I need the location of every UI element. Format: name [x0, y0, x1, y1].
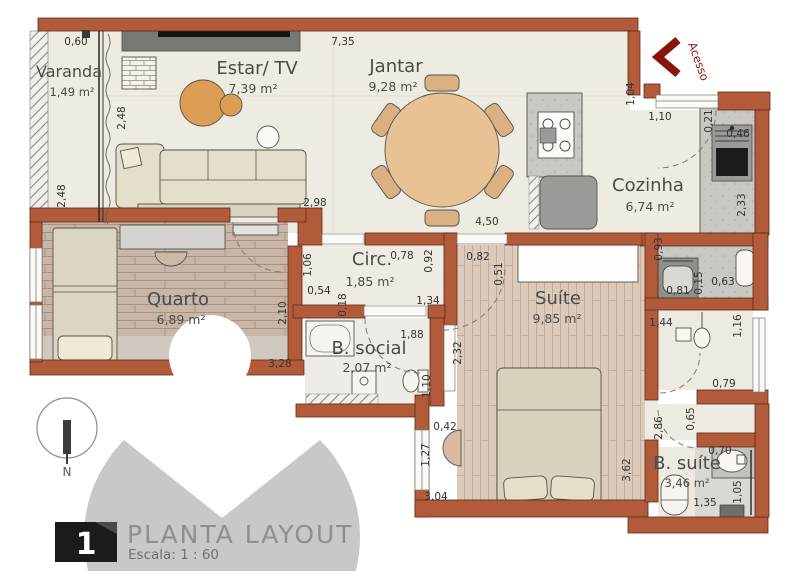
- floor-drain: [676, 328, 691, 341]
- dimension-label: 1,34: [416, 295, 440, 307]
- dimension-label: 1,16: [732, 314, 744, 338]
- dimension-label: 0,60: [64, 36, 87, 48]
- dimension-label: 0,21: [703, 109, 715, 132]
- dimension-label: 0,54: [307, 285, 331, 297]
- plant-icon: [220, 94, 242, 116]
- plant-icon: [180, 80, 226, 126]
- side-table: [257, 126, 279, 148]
- room-area-estar: 7,39 m²: [229, 81, 278, 96]
- dimension-label: 2,33: [736, 193, 748, 216]
- varanda-open-hatch: [30, 31, 48, 222]
- pillow: [58, 336, 112, 360]
- dimension-label: 1,10: [421, 374, 433, 397]
- sheet-number: 1: [76, 527, 97, 562]
- room-label-varanda: Varanda: [36, 62, 102, 81]
- armchair: [443, 430, 461, 466]
- dimension-label: 0,65: [685, 407, 697, 430]
- wc-toilet: [694, 328, 710, 348]
- room-label-jantar: Jantar: [368, 56, 423, 77]
- dimension-label: 3,28: [268, 358, 291, 370]
- dimension-label: 1,05: [732, 480, 744, 503]
- water-heater: [736, 250, 754, 286]
- room-area-suite: 9,85 m²: [533, 311, 582, 326]
- window: [30, 248, 42, 302]
- room-area-jantar: 9,28 m²: [369, 79, 418, 94]
- room-label-estar: Estar/ TV: [216, 58, 298, 79]
- dimension-label: 2,10: [277, 301, 289, 324]
- pillow: [550, 476, 594, 502]
- dimension-label: 1,35: [693, 497, 716, 509]
- floor-plan-page: Varanda 1,49 m² Estar/ TV 7,39 m² Jantar…: [0, 0, 808, 571]
- access-arrow-icon: [658, 40, 678, 74]
- dimension-label: 0,46: [726, 128, 750, 140]
- room-area-quarto: 6,89 m²: [157, 312, 206, 327]
- room-area-bsuite: 3,46 m²: [664, 476, 709, 490]
- window: [753, 318, 765, 392]
- dimension-label: 0,15: [693, 271, 705, 294]
- north-compass: N: [37, 398, 97, 479]
- dimension-label: 0,82: [466, 251, 489, 263]
- dimension-label: 4,50: [475, 216, 498, 228]
- dimension-label: 0,51: [493, 262, 505, 285]
- dimension-label: 1,06: [302, 253, 314, 277]
- dimension-label: 2,98: [303, 197, 326, 209]
- dimension-label: 2,48: [116, 106, 128, 129]
- sofa: [160, 150, 306, 204]
- room-label-circ: Circ.: [352, 249, 392, 270]
- room-area-circ: 1,85 m²: [346, 274, 395, 289]
- desk: [120, 225, 225, 249]
- dimension-label: 0,81: [666, 285, 689, 297]
- floor-plan-canvas: Varanda 1,49 m² Estar/ TV 7,39 m² Jantar…: [0, 0, 808, 571]
- dimension-label: 1,44: [649, 317, 673, 329]
- shower-bench: [720, 505, 744, 517]
- north-needle-icon: [63, 420, 71, 454]
- sofa-pillow: [120, 147, 141, 168]
- dimension-label: 0,79: [712, 378, 735, 390]
- shelf: [233, 225, 278, 235]
- dimension-label: 0,42: [433, 421, 456, 433]
- access-label: Acesso: [685, 40, 712, 82]
- room-label-quarto: Quarto: [147, 289, 209, 310]
- wardrobe: [518, 245, 638, 282]
- room-label-cozinha: Cozinha: [612, 175, 684, 196]
- room-area-cozinha: 6,74 m²: [626, 199, 675, 214]
- dimension-label: 1,04: [625, 82, 637, 106]
- dimension-label: 0,70: [708, 445, 731, 457]
- page-title: PLANTA LAYOUT: [127, 520, 354, 549]
- dimension-label: 2,86: [653, 416, 665, 440]
- north-label: N: [63, 465, 72, 479]
- dimension-label: 2,48: [56, 184, 68, 207]
- pillow: [503, 475, 547, 501]
- pan: [540, 128, 556, 143]
- scale-label: Escala: 1 : 60: [128, 547, 219, 563]
- rug: [122, 57, 156, 89]
- tv-icon: [158, 31, 290, 37]
- dimension-label: 3,62: [621, 458, 633, 481]
- dimension-label: 2,32: [452, 341, 464, 364]
- bsocial-door-leaf: [364, 306, 426, 316]
- dimension-label: 1,88: [400, 329, 423, 341]
- dimension-label: 1,27: [420, 443, 432, 466]
- room-label-bsocial: B. social: [331, 338, 406, 359]
- dimension-label: 0,78: [390, 250, 413, 262]
- dimension-label: 0,63: [711, 276, 734, 288]
- dimension-label: 0,92: [423, 249, 435, 272]
- room-area-varanda: 1,49 m²: [49, 85, 94, 99]
- window: [30, 305, 42, 359]
- fridge: [540, 176, 597, 229]
- suite-opening-sill: [457, 234, 507, 244]
- dimension-label: 0,18: [337, 293, 349, 316]
- entry-door-sill: [656, 95, 718, 108]
- dimension-label: 0,93: [653, 237, 665, 260]
- dining-table: [385, 93, 499, 207]
- access-marker: Acesso: [658, 40, 712, 83]
- room-area-bsocial: 2,07 m²: [343, 360, 392, 375]
- shower-mat: [306, 394, 378, 404]
- room-label-suite: Suíte: [535, 288, 581, 309]
- circ-opening-sill: [322, 234, 364, 244]
- dimension-label: 1,10: [648, 111, 671, 123]
- dimension-label: 7,35: [331, 36, 354, 48]
- dimension-label: 3,04: [424, 491, 448, 503]
